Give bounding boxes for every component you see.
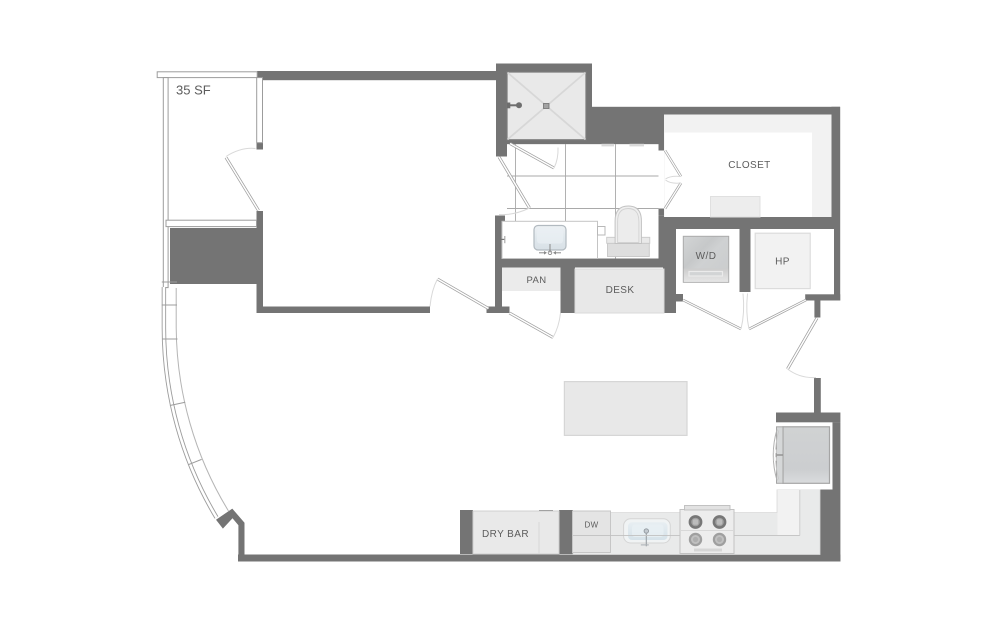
svg-text:PAN: PAN [526, 275, 546, 286]
svg-text:W/D: W/D [696, 251, 717, 262]
svg-text:HP: HP [775, 257, 790, 268]
svg-text:CLOSET: CLOSET [728, 160, 770, 171]
svg-text:DESK: DESK [606, 285, 635, 296]
svg-text:DW: DW [585, 521, 599, 530]
svg-text:DRY BAR: DRY BAR [482, 529, 529, 540]
svg-text:35 SF: 35 SF [176, 83, 211, 98]
